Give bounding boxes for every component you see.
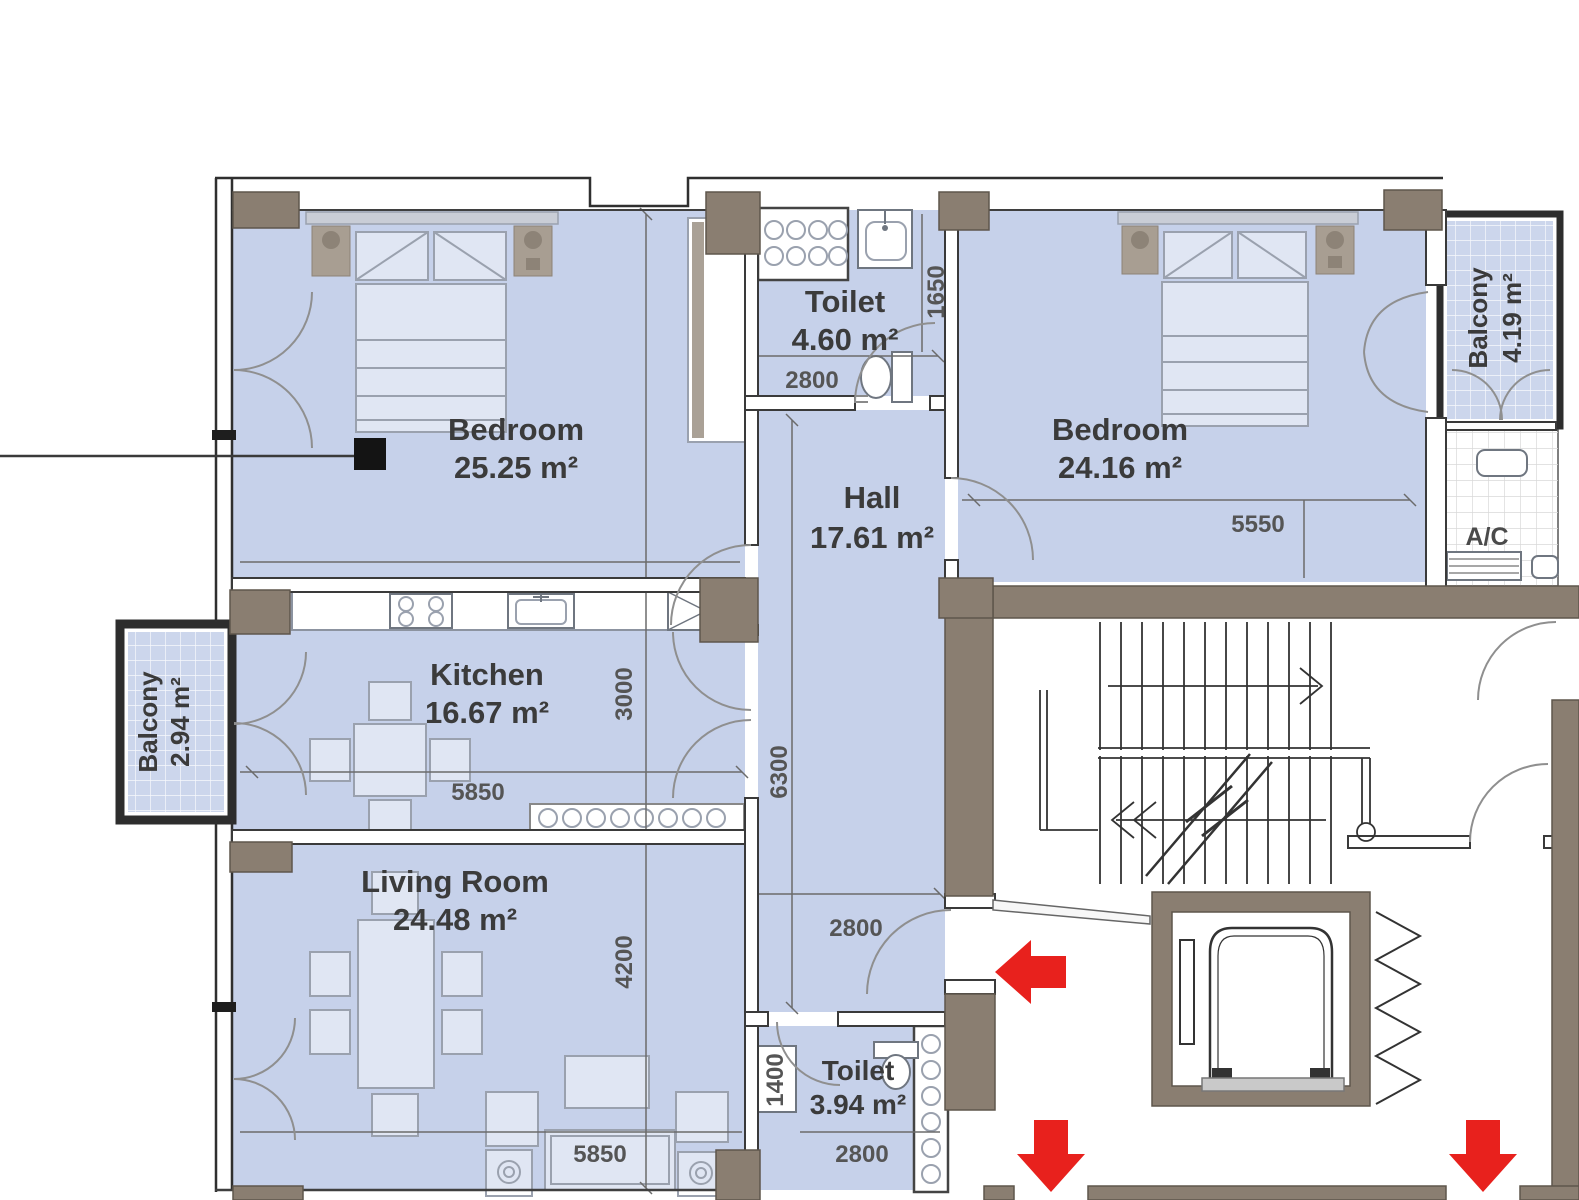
svg-text:2.94 m²: 2.94 m² <box>165 677 195 767</box>
label-hall-area: 17.61 m² <box>810 520 934 555</box>
column <box>233 192 299 228</box>
label-toilet-2-name: Toilet <box>822 1055 895 1086</box>
column <box>716 1150 760 1200</box>
svg-text:4.19 m²: 4.19 m² <box>1497 273 1527 363</box>
column <box>230 590 290 634</box>
label-bedroom-1-name: Bedroom <box>448 412 584 447</box>
ac-zone <box>1446 430 1558 586</box>
arrow-down-icon <box>1449 1120 1517 1192</box>
dim-kitchen-depth: 3000 <box>611 667 638 720</box>
column <box>706 192 760 254</box>
label-kitchen-area: 16.67 m² <box>425 695 549 730</box>
dim-kitchen-width: 5850 <box>451 779 504 806</box>
label-kitchen-name: Kitchen <box>430 657 544 692</box>
dim-toilet1-width: 2800 <box>785 367 838 394</box>
column <box>1384 190 1442 230</box>
dim-toilet1-depth: 1650 <box>923 265 950 318</box>
svg-text:Balcony: Balcony <box>133 671 163 773</box>
label-living-name: Living Room <box>361 864 549 899</box>
column <box>230 842 292 872</box>
dim-toilet2-depth: 1400 <box>762 1053 789 1106</box>
floor-plan-drawing: Bedroom 25.25 m² Toilet 4.60 m² Bedroom … <box>0 0 1579 1200</box>
window-marker <box>212 1002 236 1012</box>
window-marker <box>212 430 236 440</box>
spring-zigzag-icon <box>1376 912 1420 1104</box>
dim-hall-width: 2800 <box>829 915 882 942</box>
arrow-left-icon <box>995 940 1066 1004</box>
floor-plan-page: Bedroom 25.25 m² Toilet 4.60 m² Bedroom … <box>0 0 1579 1200</box>
dim-hall-depth: 6300 <box>766 745 793 798</box>
washing-machine-icon <box>914 1026 948 1192</box>
stairwell-wall <box>945 586 1579 618</box>
label-toilet-1-area: 4.60 m² <box>792 322 899 357</box>
label-bedroom-1-area: 25.25 m² <box>454 450 578 485</box>
column <box>233 1186 303 1200</box>
dim-living-width: 5850 <box>573 1141 626 1168</box>
legend-marker <box>354 438 386 470</box>
svg-text:Balcony: Balcony <box>1463 267 1493 369</box>
basin-icon <box>858 210 912 268</box>
radiator-icon <box>530 804 744 832</box>
label-living-area: 24.48 m² <box>393 902 517 937</box>
label-hall-name: Hall <box>844 480 901 515</box>
column <box>939 578 993 618</box>
label-toilet-1-name: Toilet <box>805 284 885 319</box>
dim-living-depth: 4200 <box>611 935 638 988</box>
label-bedroom-2-name: Bedroom <box>1052 412 1188 447</box>
label-bedroom-2-area: 24.16 m² <box>1058 450 1182 485</box>
label-toilet-2-area: 3.94 m² <box>810 1089 907 1120</box>
column <box>939 192 989 230</box>
elevator-icon <box>1152 892 1420 1106</box>
stairs-icon <box>993 622 1375 924</box>
column <box>700 578 758 642</box>
dim-bedroom2-width: 5550 <box>1231 511 1284 538</box>
label-ac: A/C <box>1465 523 1508 551</box>
washing-machine-icon <box>758 208 848 280</box>
dim-toilet2-width: 2800 <box>835 1141 888 1168</box>
ac-unit-icon <box>1477 450 1527 476</box>
arrow-down-icon <box>1017 1120 1085 1192</box>
ac-grill-icon <box>1447 552 1558 580</box>
